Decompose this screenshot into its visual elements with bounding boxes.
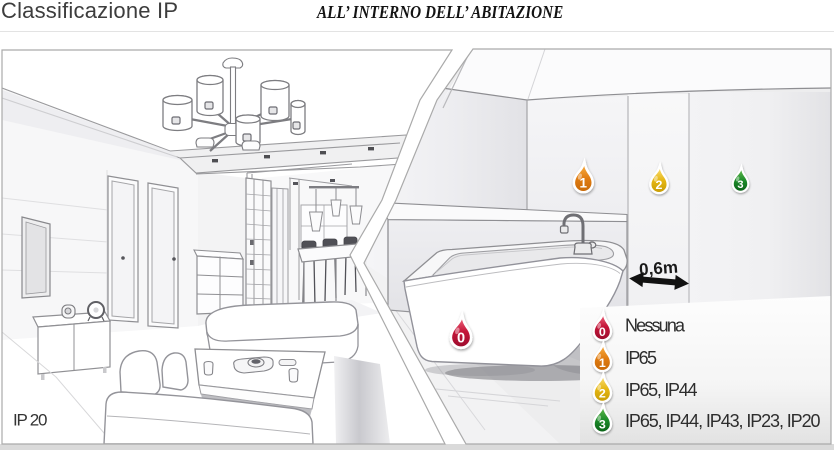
svg-text:1: 1 (580, 176, 588, 191)
svg-text:2: 2 (599, 387, 606, 401)
svg-text:IP65, IP44, IP43, IP23, IP20: IP65, IP44, IP43, IP23, IP20 (625, 411, 821, 431)
svg-text:Nessuna: Nessuna (625, 316, 686, 336)
svg-text:3: 3 (737, 179, 743, 191)
svg-text:2: 2 (656, 178, 663, 192)
svg-text:3: 3 (599, 417, 606, 431)
svg-text:IP 20: IP 20 (13, 411, 48, 430)
svg-text:0,6m: 0,6m (638, 258, 678, 280)
svg-text:IP65: IP65 (625, 348, 657, 368)
svg-text:0: 0 (457, 331, 465, 347)
svg-text:IP65, IP44: IP65, IP44 (625, 380, 698, 400)
svg-text:0: 0 (599, 325, 606, 339)
svg-text:1: 1 (599, 356, 606, 370)
